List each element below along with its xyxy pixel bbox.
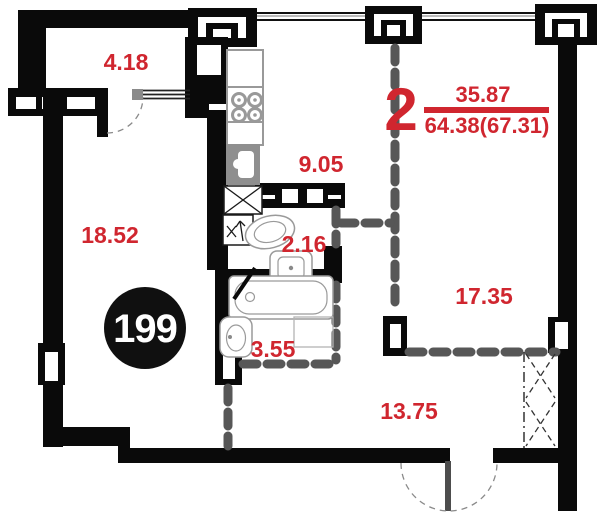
burner-dot (237, 113, 241, 117)
column-pier-c (535, 4, 597, 45)
pier-inner (558, 24, 574, 37)
burner-dot (237, 98, 241, 102)
title-block: 2 35.87 64.38(67.31) (384, 76, 549, 143)
sink-bowl (233, 159, 243, 169)
bath-counter (294, 317, 333, 347)
wardrobe-icon (524, 352, 555, 448)
badge-number: 199 (113, 307, 177, 351)
burner-dot (253, 113, 257, 117)
wc-sink-drain (289, 266, 293, 270)
wall-bottom-main (118, 448, 450, 463)
column-inner (555, 322, 568, 349)
shaft-dash (261, 195, 275, 199)
pier-inner (213, 29, 231, 38)
wall-notch (209, 104, 226, 110)
entrance-door (401, 461, 497, 511)
wall-notch (197, 45, 221, 75)
rooms-count: 2 (384, 76, 417, 143)
wall-wc-corner (324, 246, 342, 271)
area-label-bathroom: 3.55 (251, 336, 296, 362)
wall-sill-stub (97, 88, 108, 137)
area-label-balcony: 4.18 (104, 49, 149, 75)
area-label-living-room: 18.52 (81, 222, 139, 248)
balcony-window-slot (67, 97, 95, 109)
shaft-window (307, 189, 323, 203)
area-label-kitchen: 9.05 (299, 151, 344, 177)
balcony-window-slot (16, 97, 36, 109)
shaft-dash (328, 195, 341, 199)
kitchen-sink-icon (226, 144, 260, 185)
shaft-window (282, 189, 298, 203)
door-swing-arc (107, 97, 143, 133)
balcony-door (107, 89, 190, 133)
area-label-hall: 13.75 (380, 398, 438, 424)
pier-inner (387, 25, 400, 36)
area-label-bedroom: 17.35 (455, 283, 513, 309)
burner-dot (253, 98, 257, 102)
area-label-wc: 2.16 (282, 231, 327, 257)
wall-right-exterior (558, 40, 577, 511)
floor-plan-svg: 4.18 18.52 9.05 2.16 3.55 17.35 13.75 19… (0, 0, 600, 518)
wall-left-exterior (43, 95, 63, 447)
column-inner (390, 324, 401, 348)
total-area: 64.38(67.31) (425, 113, 550, 138)
column-inner (45, 352, 58, 381)
column-pier-b (365, 6, 422, 44)
apartment-badge: 199 (104, 287, 186, 369)
basin-tap (228, 335, 232, 339)
floor-plan: 4.18 18.52 9.05 2.16 3.55 17.35 13.75 19… (0, 0, 600, 518)
shaft-bar (255, 183, 345, 208)
door-handle (132, 89, 143, 100)
wall-bottom-right (493, 448, 558, 463)
living-area: 35.87 (455, 82, 510, 107)
